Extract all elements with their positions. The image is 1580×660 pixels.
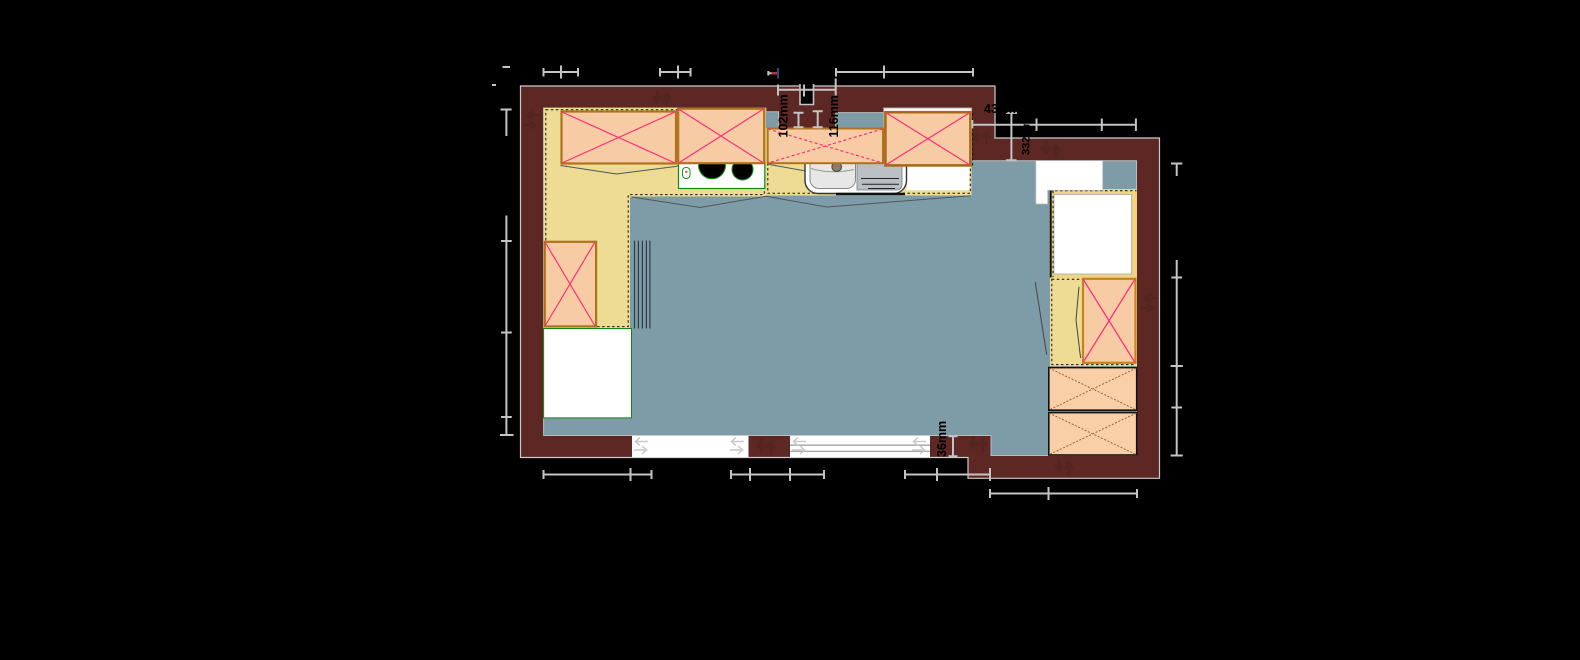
svg-text:433mm: 433mm [984,102,1027,116]
svg-text:332mm: 332mm [1021,117,1033,155]
svg-text:102mm: 102mm [777,94,791,137]
svg-text:36mm: 36mm [935,421,949,457]
svg-text:116mm: 116mm [827,95,841,137]
